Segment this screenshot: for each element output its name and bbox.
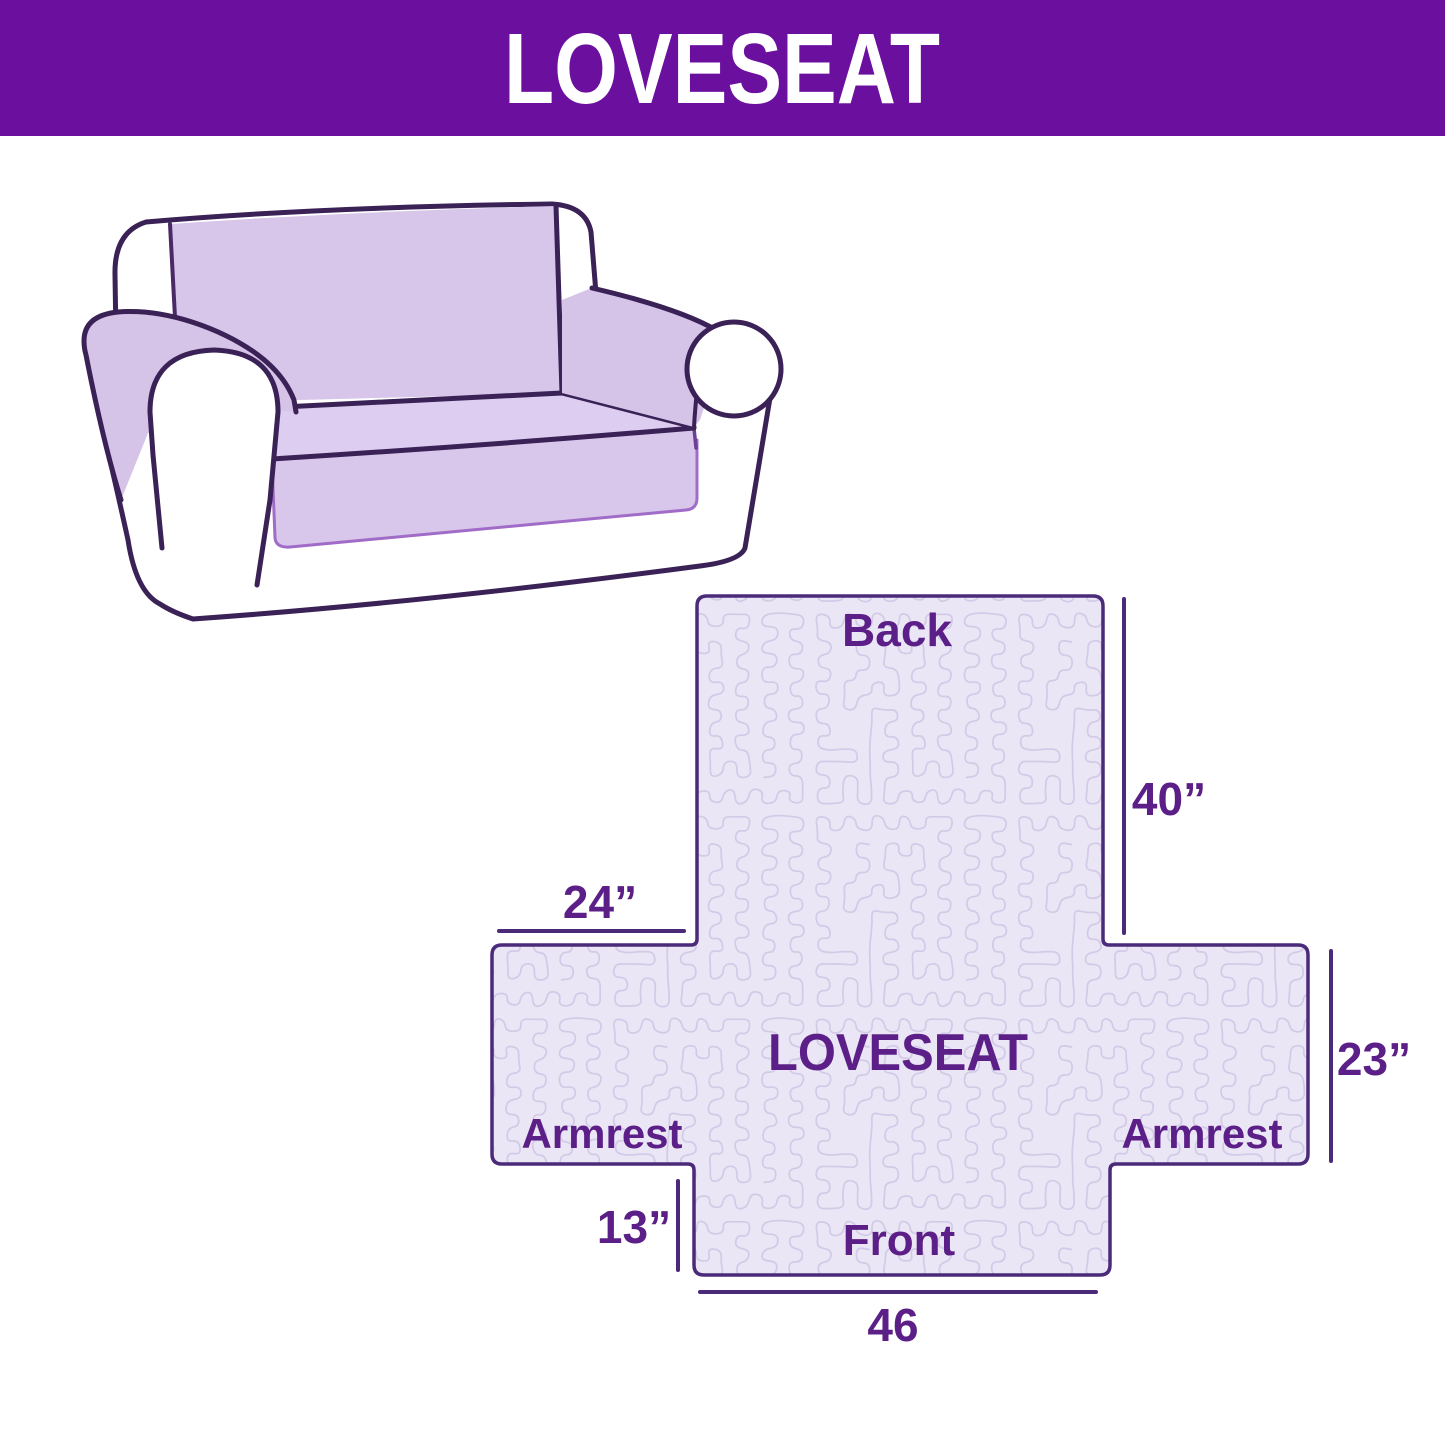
svg-text:13”: 13” <box>597 1201 671 1253</box>
svg-text:Back: Back <box>842 604 952 656</box>
svg-text:LOVESEAT: LOVESEAT <box>768 1024 1028 1082</box>
svg-text:Front: Front <box>843 1216 956 1265</box>
svg-text:40”: 40” <box>1132 773 1206 825</box>
svg-text:24”: 24” <box>563 876 637 928</box>
svg-text:Armrest: Armrest <box>521 1110 682 1157</box>
svg-text:46: 46 <box>867 1299 918 1351</box>
svg-text:Armrest: Armrest <box>1121 1110 1282 1157</box>
svg-text:LOVESEAT: LOVESEAT <box>504 13 940 125</box>
svg-text:23”: 23” <box>1337 1033 1411 1085</box>
